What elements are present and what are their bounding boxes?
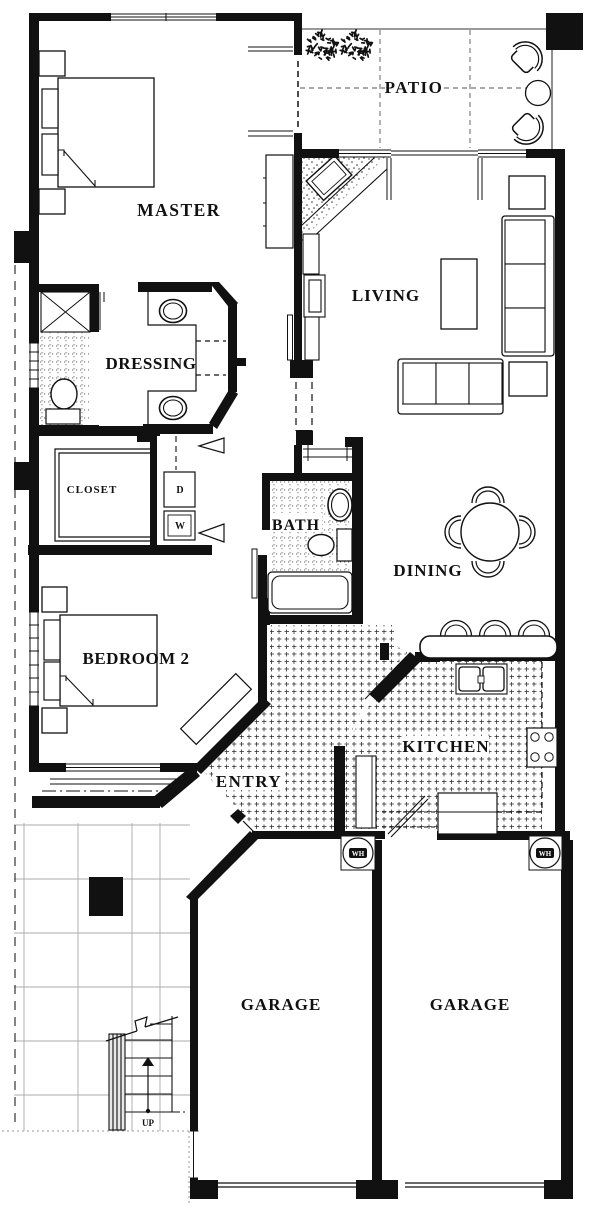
svg-text:ENTRY: ENTRY [216, 772, 282, 791]
svg-text:CLOSET: CLOSET [67, 484, 118, 496]
svg-text:WH: WH [539, 850, 552, 858]
svg-text:LIVING: LIVING [352, 286, 420, 305]
svg-text:UP: UP [142, 1118, 154, 1128]
svg-text:MASTER: MASTER [137, 200, 221, 220]
svg-text:DINING: DINING [393, 561, 462, 580]
svg-text:KITCHEN: KITCHEN [402, 737, 489, 756]
svg-text:BATH: BATH [272, 517, 320, 534]
svg-text:PATIO: PATIO [385, 78, 444, 97]
svg-text:DRESSING: DRESSING [106, 354, 197, 373]
svg-text:GARAGE: GARAGE [430, 995, 511, 1014]
svg-text:D: D [176, 485, 183, 496]
svg-text:WH: WH [352, 850, 365, 858]
svg-text:W: W [175, 521, 185, 532]
svg-text:BEDROOM 2: BEDROOM 2 [83, 649, 190, 668]
svg-text:GARAGE: GARAGE [241, 995, 322, 1014]
